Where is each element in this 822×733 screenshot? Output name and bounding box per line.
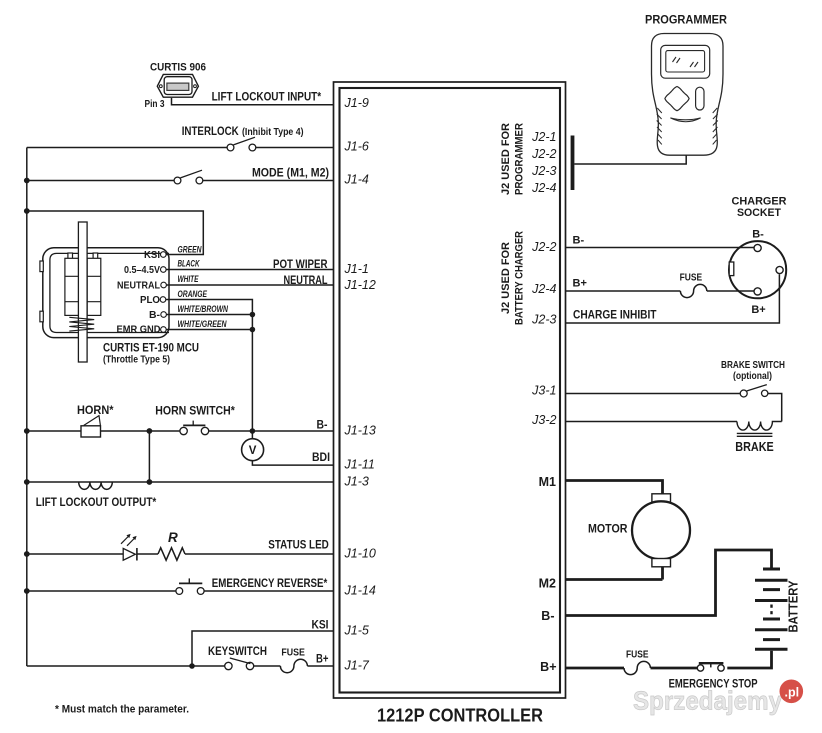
svg-text:(Throttle Type 5): (Throttle Type 5) <box>103 354 170 366</box>
svg-text:CURTIS 906: CURTIS 906 <box>150 62 206 74</box>
svg-text:.pl: .pl <box>785 685 800 699</box>
svg-text:J1-10: J1-10 <box>344 547 376 561</box>
svg-text:J1-1: J1-1 <box>344 262 369 276</box>
svg-text:PROGRAMMER: PROGRAMMER <box>645 15 728 27</box>
svg-text:J2-2: J2-2 <box>531 147 556 161</box>
svg-text:WHITE/GREEN: WHITE/GREEN <box>178 319 227 329</box>
svg-text:PLO: PLO <box>140 294 160 306</box>
svg-text:BATTERY CHARGER: BATTERY CHARGER <box>514 231 526 325</box>
svg-text:MOTOR: MOTOR <box>588 522 628 536</box>
svg-text:1212P CONTROLLER: 1212P CONTROLLER <box>377 705 543 726</box>
svg-text:J2-1: J2-1 <box>531 130 556 144</box>
svg-text:Pin 3: Pin 3 <box>145 99 165 110</box>
svg-text:WHITE: WHITE <box>178 274 200 284</box>
svg-text:BATTERY: BATTERY <box>786 580 801 632</box>
svg-text:J1-4: J1-4 <box>344 173 369 187</box>
svg-text:KEYSWITCH: KEYSWITCH <box>208 646 267 658</box>
svg-text:FUSE: FUSE <box>626 649 649 661</box>
svg-text:BLACK: BLACK <box>178 259 201 269</box>
svg-text:J2 USED FOR: J2 USED FOR <box>500 123 512 195</box>
svg-text:LIFT LOCKOUT INPUT*: LIFT LOCKOUT INPUT* <box>212 92 322 104</box>
svg-text:J3-2: J3-2 <box>531 413 556 427</box>
svg-text:J1-9: J1-9 <box>344 96 369 110</box>
svg-text:WHITE/BROWN: WHITE/BROWN <box>178 304 229 314</box>
svg-text:EMERGENCY REVERSE*: EMERGENCY REVERSE* <box>212 578 328 590</box>
svg-text:J1-3: J1-3 <box>344 475 369 489</box>
svg-text:BRAKE: BRAKE <box>735 440 774 454</box>
svg-text:J1-7: J1-7 <box>344 659 370 673</box>
svg-text:J1-5: J1-5 <box>344 624 369 638</box>
svg-text:Sprzedajemy: Sprzedajemy <box>633 686 783 716</box>
svg-text:B-: B- <box>752 229 764 241</box>
svg-text:INTERLOCK: INTERLOCK <box>182 126 240 138</box>
svg-text:B-: B- <box>541 609 554 623</box>
svg-text:CHARGER: CHARGER <box>732 196 787 208</box>
svg-text:FUSE: FUSE <box>680 272 703 284</box>
svg-text:SOCKET: SOCKET <box>737 207 781 219</box>
svg-text:KSI: KSI <box>144 249 160 261</box>
svg-text:R: R <box>168 530 178 545</box>
svg-text:KSI: KSI <box>312 620 329 632</box>
svg-text:V: V <box>249 445 257 457</box>
svg-text:B+: B+ <box>540 660 556 674</box>
svg-text:NEUTRAL: NEUTRAL <box>284 275 328 287</box>
svg-text:NEUTRAL: NEUTRAL <box>117 279 160 291</box>
svg-text:MODE (M1, M2): MODE (M1, M2) <box>252 168 329 180</box>
svg-text:B+: B+ <box>573 278 587 290</box>
svg-text:(optional): (optional) <box>733 371 772 382</box>
svg-text:M2: M2 <box>539 577 556 591</box>
svg-text:HORN SWITCH*: HORN SWITCH* <box>155 406 235 418</box>
svg-text:J2 USED FOR: J2 USED FOR <box>500 242 512 314</box>
svg-text:EMR GND: EMR GND <box>117 323 161 335</box>
svg-text:J2-2: J2-2 <box>531 240 556 254</box>
svg-text:B+: B+ <box>316 654 329 666</box>
svg-text:J1-12: J1-12 <box>344 278 376 292</box>
svg-text:0.5–4.5V: 0.5–4.5V <box>124 264 160 276</box>
svg-text:J1-6: J1-6 <box>344 140 369 154</box>
svg-text:B-: B- <box>149 309 160 321</box>
svg-text:POT WIPER: POT WIPER <box>273 259 328 271</box>
svg-text:BDI: BDI <box>312 452 330 464</box>
svg-text:CHARGE INHIBIT: CHARGE INHIBIT <box>573 310 657 322</box>
svg-text:BRAKE SWITCH: BRAKE SWITCH <box>721 359 785 371</box>
svg-text:J2-3: J2-3 <box>531 164 556 178</box>
svg-text:FUSE: FUSE <box>281 647 305 659</box>
svg-text:J1-11: J1-11 <box>344 458 375 472</box>
svg-text:HORN*: HORN* <box>77 405 114 417</box>
svg-text:J1-13: J1-13 <box>344 424 376 438</box>
svg-text:J2-3: J2-3 <box>531 313 556 327</box>
svg-text:PROGRAMMER: PROGRAMMER <box>514 123 526 195</box>
svg-text:J2-4: J2-4 <box>531 282 556 296</box>
svg-text:ORANGE: ORANGE <box>178 289 208 299</box>
svg-text:LIFT LOCKOUT OUTPUT*: LIFT LOCKOUT OUTPUT* <box>36 497 157 509</box>
svg-text:J2-4: J2-4 <box>531 181 556 195</box>
svg-text:J3-1: J3-1 <box>531 384 556 398</box>
svg-text:GREEN: GREEN <box>178 245 202 255</box>
svg-text:* Must match the parameter.: * Must match the parameter. <box>55 704 189 716</box>
svg-text:J1-14: J1-14 <box>344 584 376 598</box>
svg-text:STATUS LED: STATUS LED <box>268 540 329 552</box>
svg-text:B-: B- <box>317 420 328 432</box>
svg-text:M1: M1 <box>539 475 556 489</box>
svg-text:B+: B+ <box>751 304 765 316</box>
svg-text:B-: B- <box>573 235 585 247</box>
svg-text:(Inhibit Type 4): (Inhibit Type 4) <box>242 126 304 138</box>
